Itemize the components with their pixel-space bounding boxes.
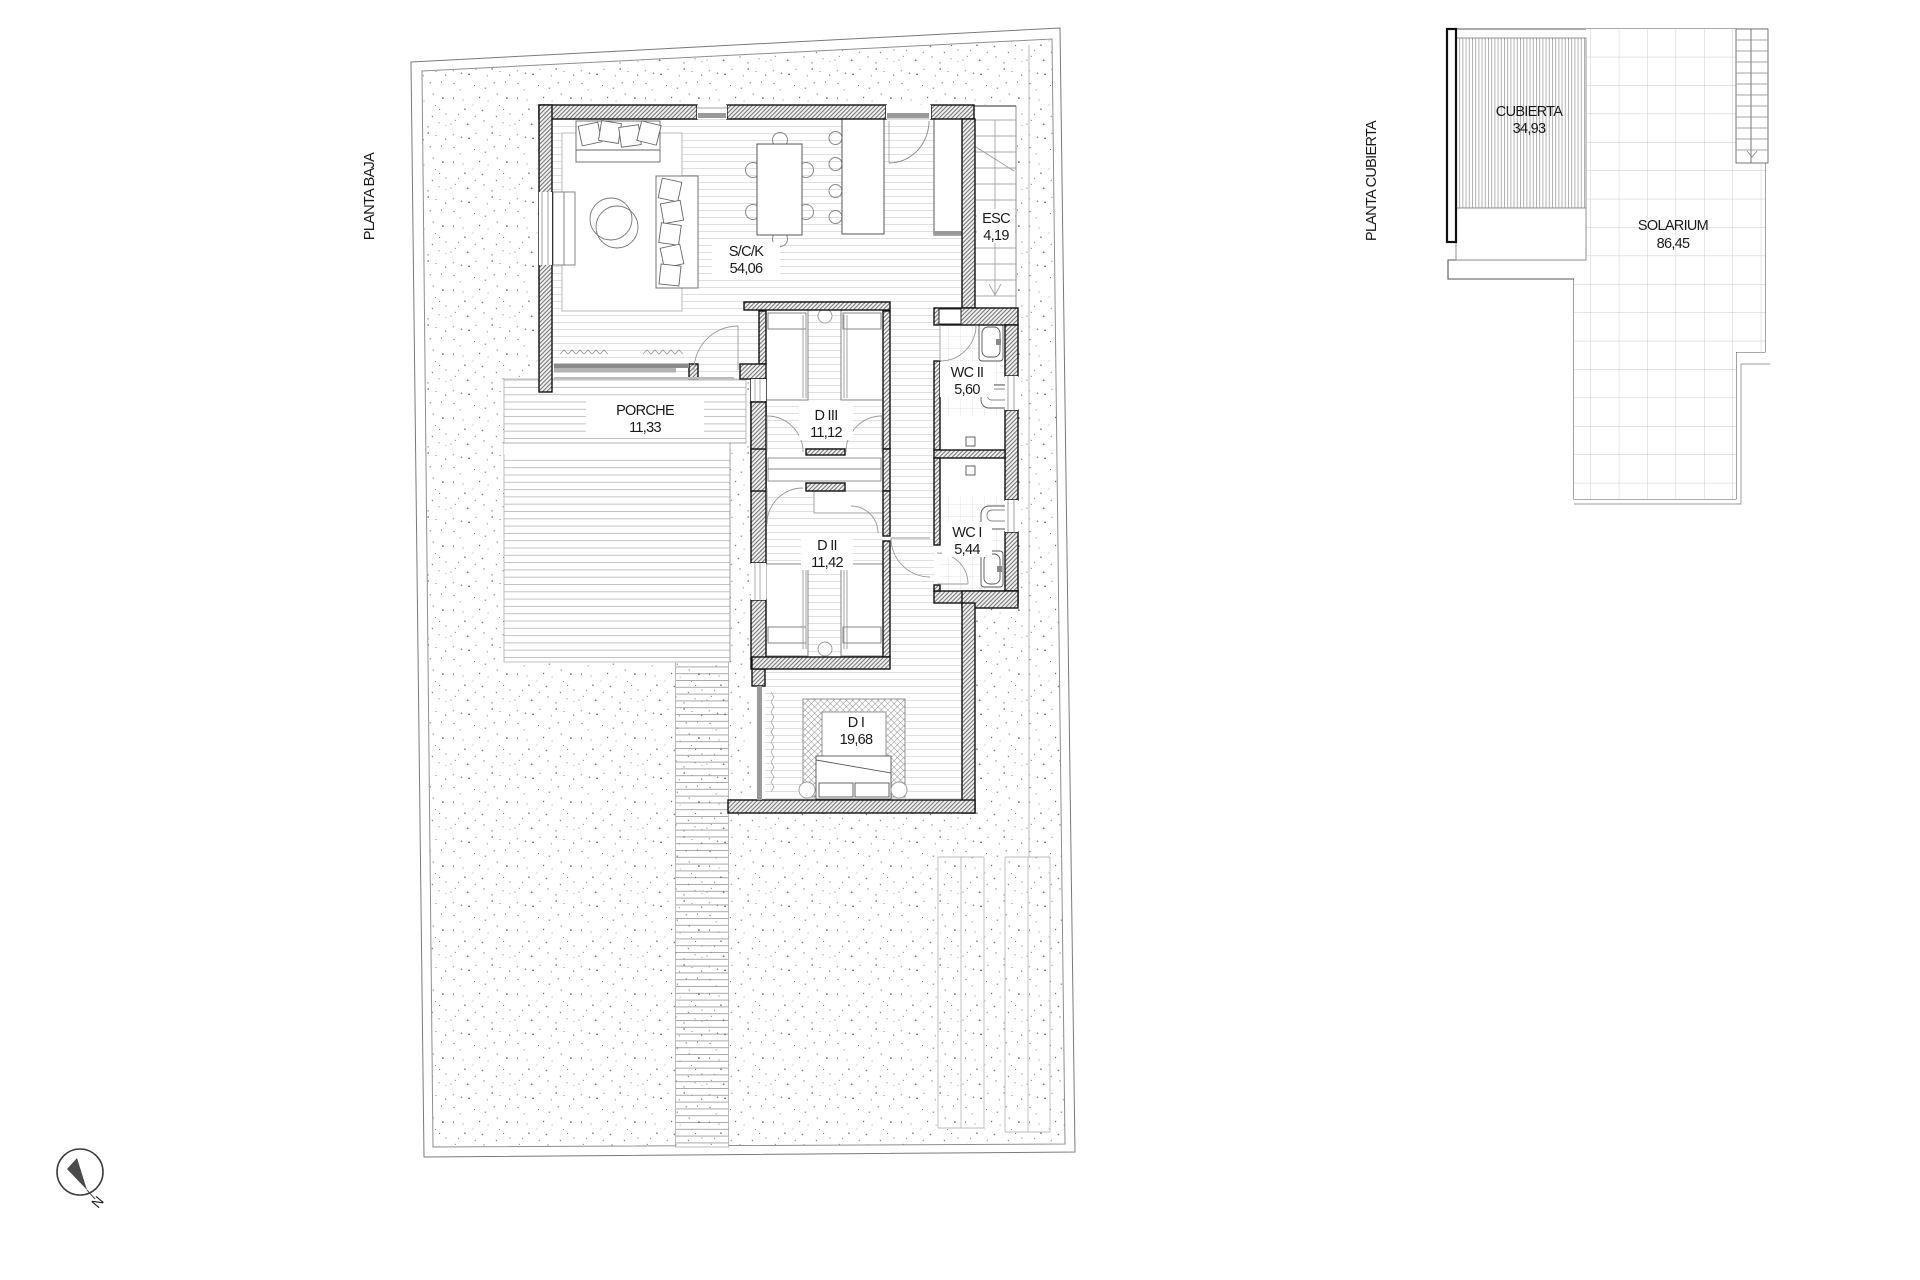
- svg-text:4,19: 4,19: [983, 228, 1009, 244]
- svg-text:CUBIERTA: CUBIERTA: [1496, 104, 1563, 120]
- svg-text:86,45: 86,45: [1657, 236, 1690, 252]
- svg-text:11,12: 11,12: [810, 425, 842, 441]
- svg-text:D II: D II: [817, 538, 837, 554]
- svg-text:11,33: 11,33: [629, 420, 661, 436]
- svg-text:WC I: WC I: [952, 525, 981, 541]
- svg-text:SOLARIUM: SOLARIUM: [1638, 218, 1708, 234]
- svg-text:54,06: 54,06: [730, 261, 763, 277]
- svg-text:PORCHE: PORCHE: [616, 403, 675, 419]
- svg-text:WC II: WC II: [951, 365, 984, 381]
- svg-text:34,93: 34,93: [1513, 121, 1546, 137]
- svg-text:PLANTA CUBIERTA: PLANTA CUBIERTA: [1364, 120, 1380, 241]
- svg-text:S/C/K: S/C/K: [729, 244, 764, 260]
- svg-text:5,60: 5,60: [954, 382, 980, 398]
- svg-text:5,44: 5,44: [954, 542, 980, 558]
- svg-text:19,68: 19,68: [840, 732, 873, 748]
- svg-text:D I: D I: [848, 715, 864, 731]
- svg-text:PLANTA BAJA: PLANTA BAJA: [362, 152, 378, 240]
- svg-text:ESC: ESC: [982, 211, 1010, 227]
- svg-text:11,42: 11,42: [811, 555, 843, 571]
- svg-text:D III: D III: [814, 408, 837, 424]
